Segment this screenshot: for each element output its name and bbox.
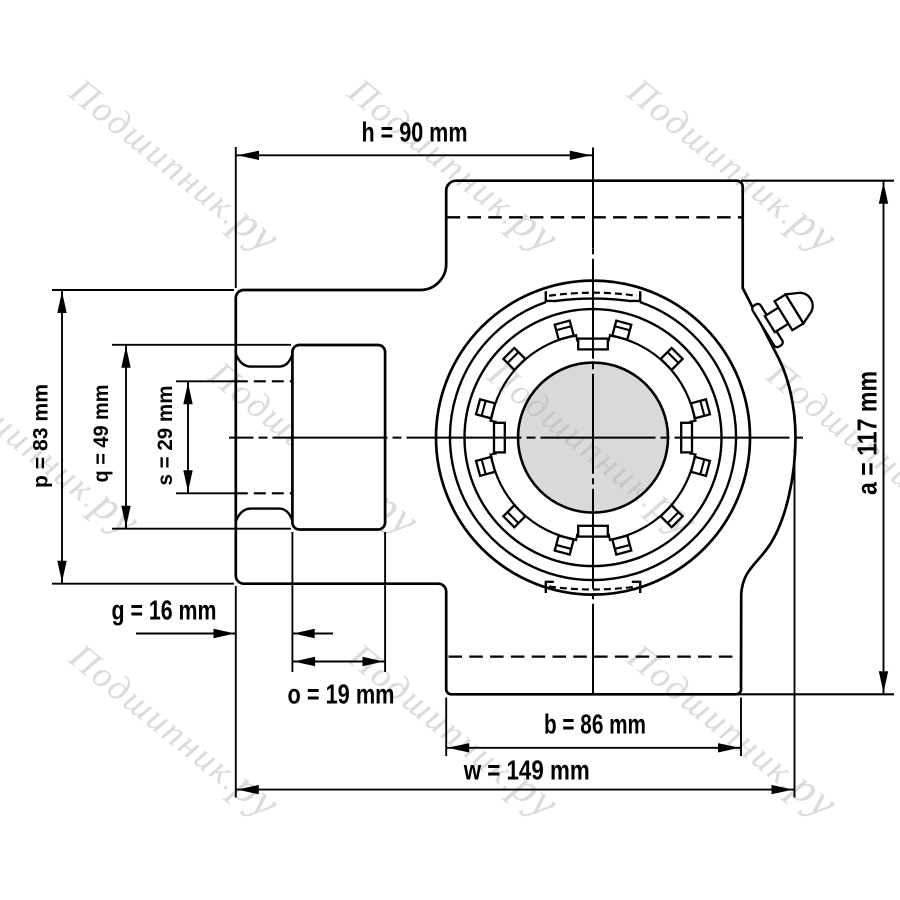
svg-text:s = 29 mm: s = 29 mm: [154, 386, 177, 486]
svg-text:a = 117 mm: a = 117 mm: [852, 371, 883, 495]
svg-text:g = 16 mm: g = 16 mm: [112, 595, 217, 626]
svg-text:p = 83 mm: p = 83 mm: [30, 384, 53, 488]
svg-text:b = 86 mm: b = 86 mm: [544, 709, 646, 740]
svg-text:w = 149 mm: w = 149 mm: [463, 755, 590, 786]
svg-text:o = 19 mm: o = 19 mm: [288, 679, 395, 710]
svg-text:q = 49 mm: q = 49 mm: [90, 385, 113, 483]
svg-text:h = 90 mm: h = 90 mm: [362, 117, 468, 148]
